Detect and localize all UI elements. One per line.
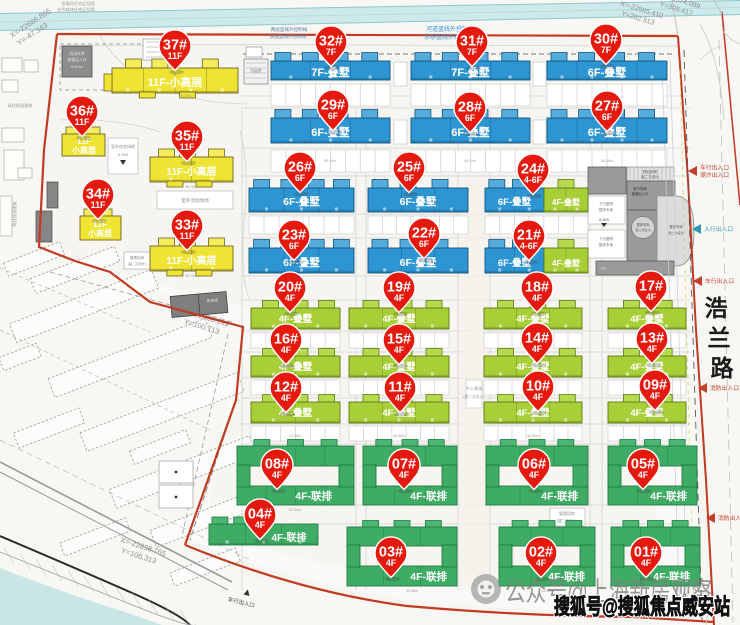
svg-text:4F: 4F: [255, 520, 266, 530]
svg-text:车行出入口: 车行出入口: [700, 164, 729, 172]
svg-text:地下车库: 地下车库: [633, 186, 647, 191]
svg-text:4F: 4F: [285, 293, 296, 303]
svg-text:6F: 6F: [289, 241, 300, 251]
svg-text:6F: 6F: [602, 112, 613, 122]
svg-text:P01: P01: [601, 267, 607, 271]
svg-text:4F: 4F: [532, 344, 543, 354]
svg-text:物业用房: 物业用房: [643, 169, 658, 174]
svg-text:消防出入口: 消防出入口: [710, 384, 739, 392]
svg-text:多层蓝线外控制线: 多层蓝线外控制线: [270, 33, 307, 40]
svg-text:兰: 兰: [708, 325, 731, 351]
svg-text:整体车库: 整体车库: [637, 222, 651, 227]
svg-text:6F: 6F: [465, 113, 476, 123]
svg-text:6F-叠墅: 6F-叠墅: [498, 196, 532, 208]
svg-text:11F: 11F: [75, 117, 90, 127]
svg-text:6F: 6F: [295, 173, 306, 183]
svg-text:4F: 4F: [394, 293, 405, 303]
svg-text:52.80m: 52.80m: [289, 508, 301, 512]
svg-text:11F-小高层: 11F-小高层: [166, 254, 216, 267]
svg-text:(建二次设计): (建二次设计): [641, 174, 659, 179]
svg-text:小高层: 小高层: [71, 145, 96, 155]
svg-text:4F-联排: 4F-联排: [295, 490, 332, 503]
svg-text:4F: 4F: [281, 393, 292, 403]
svg-text:(建二次设计): (建二次设计): [635, 227, 651, 232]
svg-text:6.900: 6.900: [118, 152, 129, 157]
svg-text:管理用房: 管理用房: [130, 255, 145, 260]
svg-text:4F-联排: 4F-联排: [410, 570, 447, 583]
svg-text:48.50m: 48.50m: [527, 434, 539, 438]
svg-text:11F-小高层: 11F-小高层: [166, 165, 216, 178]
svg-text:6F: 6F: [419, 239, 430, 249]
svg-text:6F: 6F: [328, 111, 339, 121]
svg-text:小高层: 小高层: [87, 228, 112, 238]
svg-text:4F-叠墅: 4F-叠墅: [552, 197, 580, 207]
svg-text:4F: 4F: [536, 558, 547, 568]
svg-text:4-6F: 4-6F: [524, 175, 543, 185]
svg-text:4F: 4F: [650, 391, 661, 401]
svg-text:4F: 4F: [646, 292, 657, 302]
svg-text:58.40m: 58.40m: [324, 159, 336, 163]
svg-text:11F: 11F: [168, 51, 183, 61]
svg-text:4F: 4F: [641, 558, 652, 568]
svg-text:4F: 4F: [272, 470, 283, 480]
svg-text:4F: 4F: [638, 470, 649, 480]
svg-text:4F: 4F: [386, 558, 397, 568]
svg-text:46.70m: 46.70m: [185, 185, 197, 189]
svg-text:下沉庭院: 下沉庭院: [599, 201, 614, 206]
svg-text:室外综合场地: 室外综合场地: [111, 143, 135, 149]
svg-text:6F-叠墅: 6F-叠墅: [400, 195, 437, 208]
svg-text:4F: 4F: [529, 470, 540, 480]
svg-text:配电房: 配电房: [207, 297, 219, 303]
svg-text:4F-联排: 4F-联排: [272, 531, 307, 544]
svg-text:11F: 11F: [91, 200, 106, 210]
svg-text:4F: 4F: [394, 345, 405, 355]
svg-text:7F: 7F: [467, 47, 478, 57]
svg-text:(建二次设计): (建二次设计): [128, 261, 146, 266]
svg-text:48.50m: 48.50m: [393, 434, 405, 438]
svg-text:6F-叠墅: 6F-叠墅: [400, 256, 437, 269]
svg-text:现状保留建筑: 现状保留建筑: [7, 102, 33, 109]
svg-text:整体车库: 整体车库: [669, 224, 683, 229]
svg-text:42.30m: 42.30m: [289, 434, 301, 438]
svg-text:4F: 4F: [533, 392, 544, 402]
svg-text:下沉庭院: 下沉庭院: [599, 236, 614, 241]
svg-text:58.40m: 58.40m: [601, 159, 613, 163]
svg-text:垃圾房: 垃圾房: [250, 68, 262, 73]
svg-text:现状保留建筑: 现状保留建筑: [11, 201, 18, 227]
svg-text:11F: 11F: [180, 142, 195, 152]
svg-text:潮汐出入口: 潮汐出入口: [700, 171, 729, 179]
svg-text:4F: 4F: [647, 344, 658, 354]
svg-text:4F-联排: 4F-联排: [410, 490, 447, 503]
svg-text:协福苑住宅区挡墙: 协福苑住宅区挡墙: [61, 0, 95, 7]
svg-text:两层蓝线外控制线: 两层蓝线外控制线: [271, 26, 308, 33]
svg-text:4F-联排: 4F-联排: [541, 490, 578, 503]
svg-text:7F: 7F: [326, 47, 337, 57]
svg-text:路: 路: [711, 355, 735, 381]
svg-text:管理用房: 管理用房: [559, 510, 575, 516]
svg-text:11F-小高层: 11F-小高层: [147, 75, 202, 89]
svg-text:4-6F: 4-6F: [520, 241, 539, 251]
svg-text:76.70m: 76.70m: [179, 94, 191, 98]
svg-text:车行出入口: 车行出入口: [705, 277, 734, 285]
svg-text:中心景观: 中心景观: [466, 385, 484, 392]
svg-text:搜狐号@搜狐焦点威安站: 搜狐号@搜狐焦点威安站: [554, 594, 730, 619]
svg-text:4F-联排: 4F-联排: [650, 490, 687, 503]
svg-text:坡道出入口: 坡道出入口: [68, 57, 87, 62]
svg-text:整体车库: 整体车库: [599, 242, 614, 247]
svg-text:(建二次设计): (建二次设计): [463, 394, 485, 399]
svg-text:4F: 4F: [399, 470, 410, 480]
svg-text:4F-叠墅: 4F-叠墅: [552, 258, 580, 268]
svg-text:58.40m: 58.40m: [464, 159, 476, 163]
svg-text:消防出入口: 消防出入口: [718, 514, 740, 522]
svg-text:室外活动场地: 室外活动场地: [181, 197, 209, 204]
svg-text:4F: 4F: [532, 293, 543, 303]
svg-text:4F: 4F: [395, 393, 406, 403]
svg-text:46.70m: 46.70m: [185, 274, 197, 278]
svg-text:人行出入口: 人行出入口: [704, 225, 733, 233]
svg-text:6.900: 6.900: [599, 217, 610, 222]
svg-text:浩: 浩: [705, 295, 728, 321]
svg-text:6F-叠墅: 6F-叠墅: [283, 195, 320, 208]
svg-text:4F: 4F: [281, 345, 292, 355]
svg-text:H=5.0m: H=5.0m: [71, 65, 83, 69]
svg-text:坡道出入口: 坡道出入口: [632, 191, 649, 196]
svg-text:52.86m: 52.86m: [406, 589, 418, 593]
svg-text:11F: 11F: [180, 231, 195, 241]
svg-text:整体车库: 整体车库: [599, 207, 614, 212]
svg-text:6F: 6F: [404, 173, 415, 183]
svg-text:机动车库: 机动车库: [69, 51, 84, 56]
svg-text:7F: 7F: [601, 45, 612, 55]
